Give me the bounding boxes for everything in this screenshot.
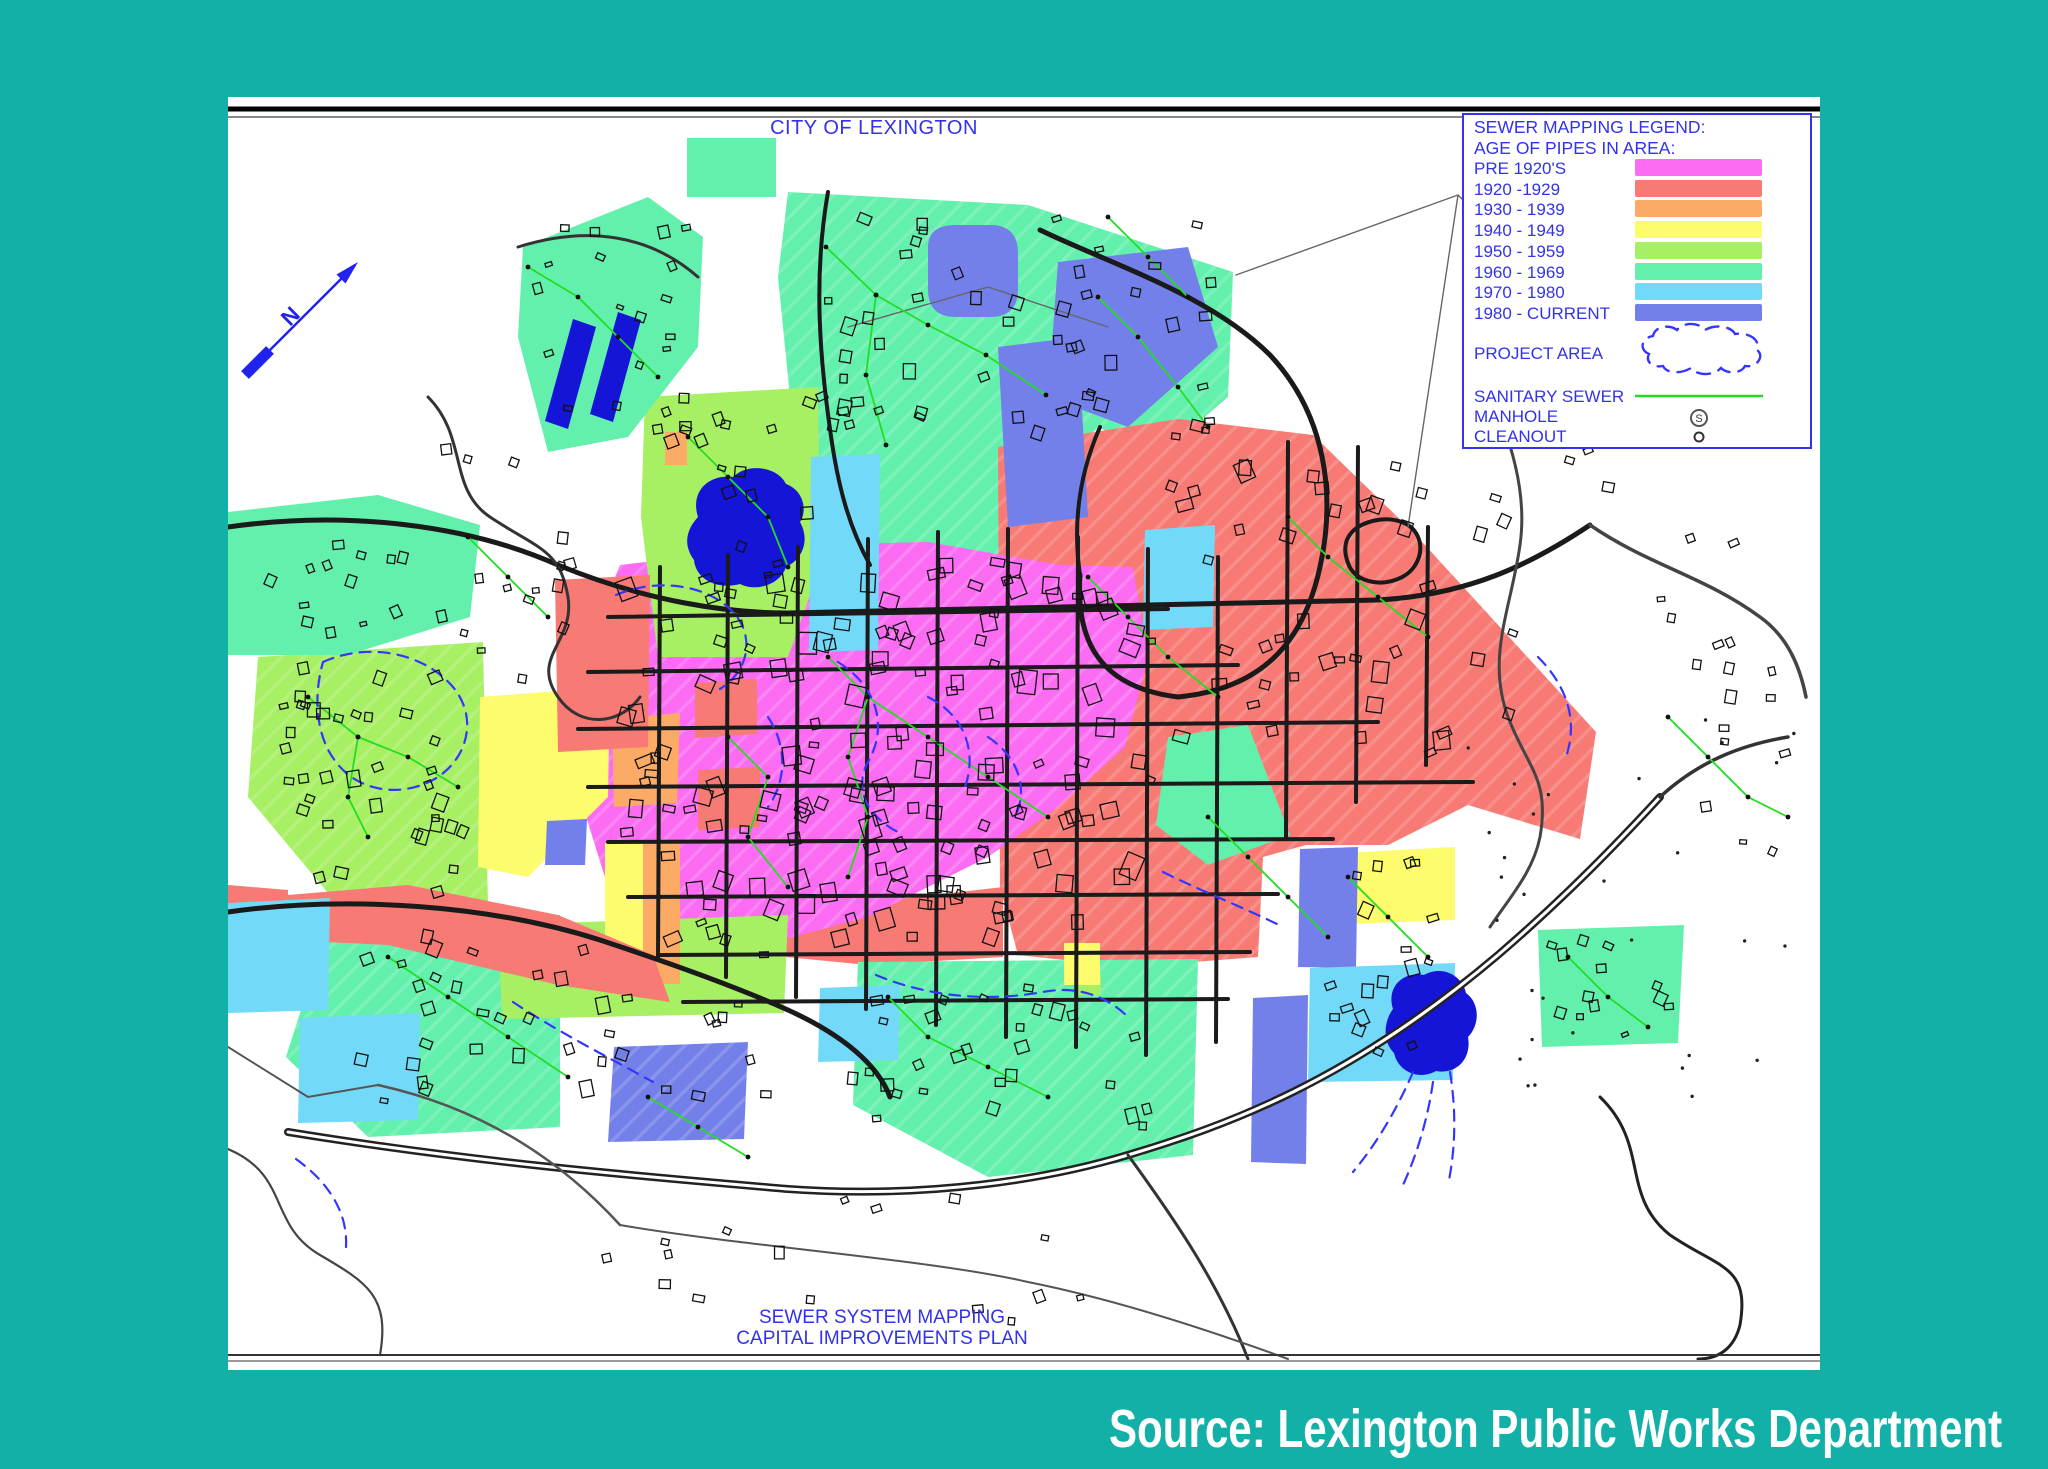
tree-dot <box>1503 856 1506 859</box>
manhole-dot <box>546 615 551 620</box>
tree-dot <box>1541 996 1544 999</box>
map-subtitle-line2: CAPITAL IMPROVEMENTS PLAN <box>682 1328 1082 1349</box>
tree-dot <box>1690 1095 1693 1098</box>
manhole-dot <box>984 353 989 358</box>
building <box>661 1238 670 1245</box>
building <box>1192 221 1202 229</box>
tree-dot <box>1720 741 1723 744</box>
manhole-icon: S <box>1688 407 1710 429</box>
building <box>692 1294 704 1303</box>
manhole-dot <box>1216 695 1221 700</box>
manhole-dot <box>306 695 311 700</box>
building <box>949 1193 961 1204</box>
manhole-dot <box>1706 755 1711 760</box>
age-region-a1970 <box>228 898 330 1013</box>
manhole-dot <box>346 795 351 800</box>
tree-dot <box>1704 718 1707 721</box>
manhole-dot <box>746 1155 751 1160</box>
source-caption: Source: Lexington Public Works Departmen… <box>1109 1398 2002 1460</box>
building <box>1041 1235 1049 1241</box>
manhole-dot <box>926 323 931 328</box>
tree-dot <box>1466 746 1469 749</box>
legend-subtitle: AGE OF PIPES IN AREA: <box>1474 138 1675 159</box>
legend-entry-swatch <box>1635 283 1762 300</box>
age-region-a1980 <box>1251 995 1308 1164</box>
tree-dot <box>1495 919 1498 922</box>
building <box>1565 456 1575 465</box>
age-region-a1970 <box>1143 525 1215 630</box>
road <box>1660 737 1788 797</box>
svg-text:S: S <box>1695 413 1702 425</box>
manhole-dot <box>1136 335 1141 340</box>
manhole-dot <box>1326 555 1331 560</box>
building <box>1602 482 1615 493</box>
building <box>604 1030 614 1038</box>
building <box>1766 695 1775 702</box>
tree-dot <box>1755 1059 1758 1062</box>
map-legend: SEWER MAPPING LEGEND: AGE OF PIPES IN AR… <box>1462 113 1812 449</box>
age-region-a1960 <box>687 138 776 197</box>
tree-dot <box>1743 939 1746 942</box>
building <box>460 629 468 636</box>
manhole-dot <box>1086 575 1091 580</box>
manhole-dot <box>826 655 831 660</box>
manhole-dot <box>506 1035 511 1040</box>
building <box>579 1080 594 1098</box>
manhole-dot <box>884 443 889 448</box>
road <box>1408 195 1458 527</box>
age-region-a1920 <box>698 767 760 830</box>
building <box>1692 659 1701 669</box>
legend-entry-label: 1930 - 1939 <box>1474 200 1565 220</box>
manhole-dot <box>656 375 661 380</box>
building <box>1416 487 1427 498</box>
road <box>1590 525 1806 697</box>
building <box>1700 801 1711 812</box>
building <box>1033 1289 1046 1303</box>
north-label: N <box>276 302 305 331</box>
building <box>1077 1294 1084 1300</box>
manhole-dot <box>926 735 931 740</box>
building <box>1508 629 1518 637</box>
building <box>806 1296 814 1304</box>
manhole-dot <box>874 293 879 298</box>
manhole-dot <box>446 995 451 1000</box>
building <box>503 584 511 592</box>
manhole-dot <box>1606 995 1611 1000</box>
manhole-dot <box>726 735 731 740</box>
tree-dot <box>1571 1031 1574 1034</box>
building <box>598 1057 606 1067</box>
building <box>775 1246 785 1259</box>
manhole-dot <box>1186 295 1191 300</box>
legend-project-area-label: PROJECT AREA <box>1474 344 1603 364</box>
street <box>1006 529 1008 1037</box>
legend-entry-label: 1980 - CURRENT <box>1474 304 1610 324</box>
project-area-outline <box>296 1159 346 1247</box>
legend-cleanout-label: CLEANOUT <box>1474 427 1567 447</box>
building <box>523 595 534 605</box>
manhole-dot <box>366 835 371 840</box>
tree-dot <box>1775 761 1778 764</box>
manhole-dot <box>1326 935 1331 940</box>
manhole-dot <box>526 265 531 270</box>
tree-dot <box>1513 782 1516 785</box>
street <box>1146 549 1148 1055</box>
tree-dot <box>1681 1066 1684 1069</box>
age-region-a1940 <box>1064 943 1100 985</box>
manhole-dot <box>576 295 581 300</box>
building <box>1725 690 1737 704</box>
tree-dot <box>1602 879 1605 882</box>
building <box>1390 462 1400 471</box>
building <box>1401 947 1411 953</box>
age-region-a1980 <box>545 819 587 865</box>
manhole-dot <box>824 245 829 250</box>
building <box>1768 846 1777 856</box>
manhole-dot <box>766 515 771 520</box>
building <box>1740 840 1747 845</box>
tree-dot <box>1530 1038 1533 1041</box>
legend-entry-swatch <box>1635 242 1762 259</box>
manhole-dot <box>1786 815 1791 820</box>
manhole-dot <box>846 755 851 760</box>
manhole-dot <box>986 775 991 780</box>
age-region-a1980 <box>928 225 1018 317</box>
building <box>1667 613 1675 623</box>
tree-dot <box>1783 944 1786 947</box>
building <box>564 1043 575 1056</box>
tree-dot <box>1676 851 1679 854</box>
tree-dot <box>1518 1057 1521 1060</box>
manhole-dot <box>1046 815 1051 820</box>
tree-dot <box>1547 793 1550 796</box>
manhole-dot <box>864 373 869 378</box>
legend-sanitary-sewer-label: SANITARY SEWER <box>1474 387 1624 407</box>
manhole-dot <box>846 875 851 880</box>
age-region-hatch <box>608 1042 748 1142</box>
manhole-dot <box>616 335 621 340</box>
manhole-dot <box>646 1095 651 1100</box>
map-subtitle: SEWER SYSTEM MAPPING CAPITAL IMPROVEMENT… <box>682 1307 1082 1349</box>
slide-background: N CITY OF LEXINGTON SEWER MAPPING LEGEND… <box>0 0 2048 1469</box>
tree-dot <box>1533 1083 1536 1086</box>
building <box>441 444 452 455</box>
tree-dot <box>1500 875 1503 878</box>
legend-entry-swatch <box>1635 304 1762 321</box>
building <box>475 573 483 583</box>
tree-dot <box>1792 732 1795 735</box>
building <box>1728 538 1739 548</box>
cleanout-icon <box>1692 430 1706 444</box>
road <box>1128 1155 1248 1359</box>
map-title: CITY OF LEXINGTON <box>674 117 1074 140</box>
manhole-dot <box>386 955 391 960</box>
age-region-a1970 <box>298 1013 420 1123</box>
manhole-dot <box>786 565 791 570</box>
manhole-dot <box>356 735 361 740</box>
tree-dot <box>1522 893 1525 896</box>
building <box>1497 513 1512 529</box>
manhole-dot <box>456 785 461 790</box>
manhole-dot <box>1646 1025 1651 1030</box>
building <box>602 1253 612 1263</box>
building <box>1713 640 1725 650</box>
manhole-dot <box>1176 385 1181 390</box>
street <box>1216 557 1218 1042</box>
manhole-dot <box>406 755 411 760</box>
building <box>509 457 520 468</box>
building <box>723 1227 732 1235</box>
legend-entry-swatch <box>1635 180 1762 197</box>
manhole-dot <box>1286 515 1291 520</box>
age-region-a1980 <box>1298 847 1358 968</box>
manhole-dot <box>1166 655 1171 660</box>
manhole-dot <box>786 885 791 890</box>
manhole-dot <box>566 1075 571 1080</box>
manhole-dot <box>1286 895 1291 900</box>
north-arrow: N <box>245 262 358 375</box>
building <box>532 588 539 594</box>
manhole-dot <box>1746 795 1751 800</box>
building <box>1490 494 1501 503</box>
legend-entry-swatch <box>1635 221 1762 238</box>
manhole-dot <box>506 575 511 580</box>
manhole-dot <box>1096 295 1101 300</box>
manhole-dot <box>886 995 891 1000</box>
tree-dot <box>1526 1084 1529 1087</box>
manhole-dot <box>1246 855 1251 860</box>
building <box>840 1196 848 1204</box>
manhole-dot <box>1666 715 1671 720</box>
building <box>1779 749 1790 758</box>
manhole-dot <box>466 535 471 540</box>
street <box>726 555 728 977</box>
road <box>1600 1097 1742 1359</box>
building <box>1724 662 1735 675</box>
manhole-dot <box>1376 595 1381 600</box>
street <box>1356 447 1358 802</box>
manhole-dot <box>1106 215 1111 220</box>
sanitary-sewer-line-icon <box>1635 393 1763 399</box>
building <box>1686 533 1696 543</box>
manhole-dot <box>1386 915 1391 920</box>
manhole-dot <box>1426 635 1431 640</box>
tree-dot <box>1637 777 1640 780</box>
age-region-a1940 <box>1345 847 1455 924</box>
manhole-dot <box>766 775 771 780</box>
building <box>1473 526 1487 542</box>
building <box>518 674 527 683</box>
manhole-dot <box>1046 1095 1051 1100</box>
building <box>659 1280 670 1289</box>
tree-dot <box>1630 938 1633 941</box>
building <box>664 1250 672 1259</box>
tree-dot <box>1687 1054 1690 1057</box>
project-area-outline <box>1353 1072 1454 1185</box>
legend-entry-label: 1940 - 1949 <box>1474 221 1565 241</box>
manhole-dot <box>926 1035 931 1040</box>
building <box>463 455 472 464</box>
manhole-dot <box>1346 875 1351 880</box>
building <box>1725 637 1735 648</box>
manhole-dot <box>726 475 731 480</box>
building <box>871 1204 882 1213</box>
building <box>557 532 568 544</box>
manhole-dot <box>1126 615 1131 620</box>
legend-manhole-label: MANHOLE <box>1474 407 1558 427</box>
manhole-dot <box>746 835 751 840</box>
street <box>936 532 938 1025</box>
building <box>1719 725 1729 731</box>
manhole-dot <box>1044 393 1049 398</box>
legend-entry-label: 1960 - 1969 <box>1474 263 1565 283</box>
manhole-dot <box>1206 815 1211 820</box>
map-subtitle-line1: SEWER SYSTEM MAPPING <box>682 1307 1082 1328</box>
legend-entry-label: 1920 -1929 <box>1474 180 1560 200</box>
tree-dot <box>1487 831 1490 834</box>
project-area-cloud-icon <box>1635 320 1767 376</box>
building <box>1768 667 1776 676</box>
street <box>1426 527 1428 765</box>
legend-entry-swatch <box>1635 159 1762 176</box>
map-sheet: N CITY OF LEXINGTON SEWER MAPPING LEGEND… <box>228 97 1820 1370</box>
legend-entry-label: PRE 1920'S <box>1474 159 1566 179</box>
tree-dot <box>1530 989 1533 992</box>
legend-entry-label: 1950 - 1959 <box>1474 242 1565 262</box>
age-region-a1980 <box>998 337 1088 527</box>
manhole-dot <box>696 1125 701 1130</box>
building <box>761 1091 771 1098</box>
building <box>746 1055 755 1065</box>
street <box>1076 537 1078 1047</box>
manhole-dot <box>986 1065 991 1070</box>
legend-entry-swatch <box>1635 263 1762 280</box>
legend-entry-label: 1970 - 1980 <box>1474 283 1565 303</box>
road <box>228 1149 382 1355</box>
legend-title: SEWER MAPPING LEGEND: <box>1474 117 1705 138</box>
legend-entry-swatch <box>1635 200 1762 217</box>
manhole-dot <box>1146 255 1151 260</box>
tree-dot <box>1532 812 1535 815</box>
building <box>1657 597 1665 602</box>
